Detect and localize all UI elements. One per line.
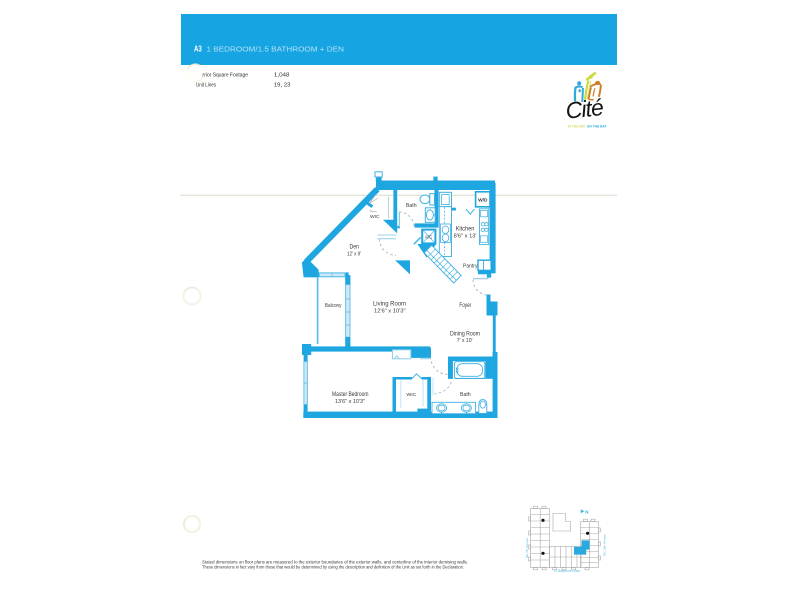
svg-text:Master Bedroom: Master Bedroom (332, 392, 369, 398)
svg-text:Foyer: Foyer (459, 303, 471, 309)
svg-text:Pantry: Pantry (463, 264, 478, 270)
svg-text:ON THE BAY: ON THE BAY (587, 125, 608, 129)
svg-text:12'6" x 10'3": 12'6" x 10'3" (374, 309, 406, 315)
svg-text:Dining Room: Dining Room (450, 332, 480, 338)
svg-text:A/C: A/C (425, 235, 433, 240)
svg-text:WIC: WIC (370, 214, 380, 220)
svg-text:1,048: 1,048 (274, 73, 290, 79)
svg-text:Den: Den (350, 245, 360, 251)
svg-text:Cité: Cité (564, 94, 604, 124)
svg-text:Balcony: Balcony (325, 303, 342, 309)
svg-text:Bath: Bath (460, 392, 471, 398)
svg-text:7' x 10': 7' x 10' (457, 338, 473, 344)
svg-text:8'6" x 13': 8'6" x 13' (454, 233, 477, 239)
svg-text:N. Bayshore Drive: N. Bayshore Drive (554, 569, 580, 573)
svg-text:Kitchen: Kitchen (456, 227, 475, 233)
svg-text:These dimensions in fact vary: These dimensions in fact vary from those… (202, 565, 464, 570)
svg-text:A3: A3 (194, 44, 202, 53)
svg-text:19, 23: 19, 23 (274, 82, 291, 88)
svg-text:NE 19th Terrace: NE 19th Terrace (603, 534, 607, 556)
svg-text:IN THE MIX: IN THE MIX (568, 125, 586, 129)
svg-text:NE 7th Avenue: NE 7th Avenue (525, 538, 529, 558)
svg-text:13'6" x 10'3": 13'6" x 10'3" (335, 399, 365, 405)
svg-text:WIC: WIC (406, 392, 416, 398)
svg-text:Living Room: Living Room (373, 302, 406, 308)
svg-text:12' x 9': 12' x 9' (347, 252, 361, 258)
svg-text:Unit Lines: Unit Lines (196, 82, 216, 88)
svg-text:Bath: Bath (406, 203, 417, 209)
svg-text:W/D: W/D (478, 198, 488, 204)
svg-text:1 BEDROOM/1.5 BATHROOM + DEN: 1 BEDROOM/1.5 BATHROOM + DEN (207, 44, 345, 53)
